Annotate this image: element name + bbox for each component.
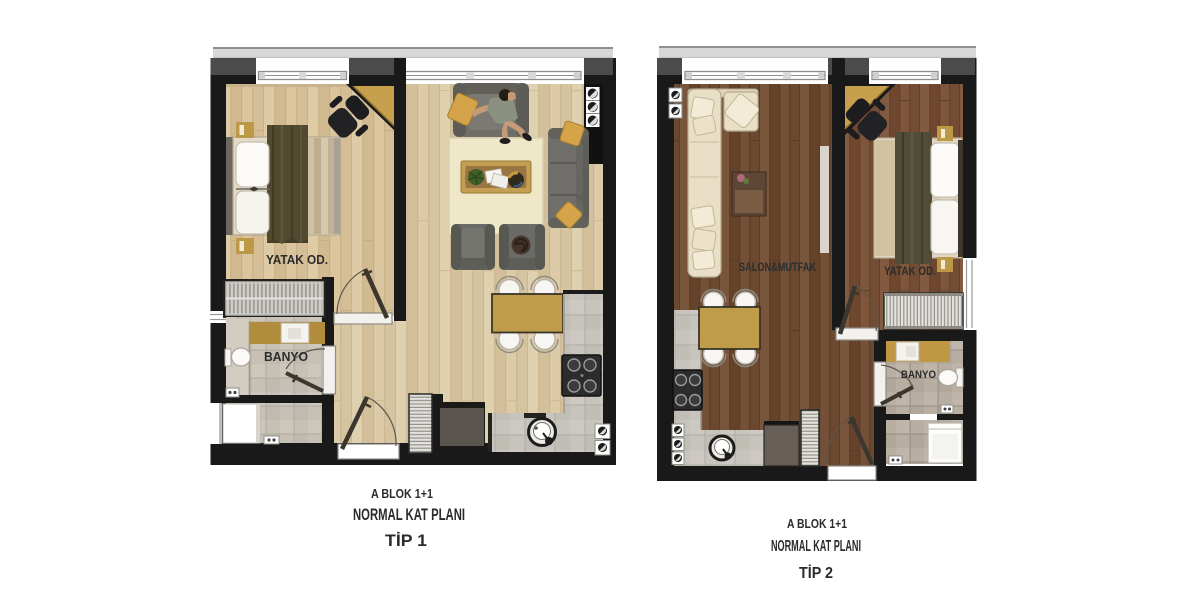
svg-text:TİP 2: TİP 2: [799, 564, 833, 582]
svg-text:TİP 1: TİP 1: [385, 532, 427, 550]
svg-text:BANYO: BANYO: [901, 369, 936, 381]
svg-text:SALON&MUTFAK: SALON&MUTFAK: [739, 260, 816, 274]
svg-text:NORMAL KAT PLANI: NORMAL KAT PLANI: [771, 538, 861, 555]
svg-text:YATAK OD.: YATAK OD.: [884, 264, 936, 278]
svg-text:YATAK OD.: YATAK OD.: [266, 252, 328, 267]
svg-text:NORMAL KAT PLANI: NORMAL KAT PLANI: [353, 506, 465, 524]
svg-text:A BLOK 1+1: A BLOK 1+1: [371, 486, 433, 501]
svg-text:BANYO: BANYO: [264, 349, 308, 364]
svg-text:A BLOK 1+1: A BLOK 1+1: [787, 517, 847, 531]
